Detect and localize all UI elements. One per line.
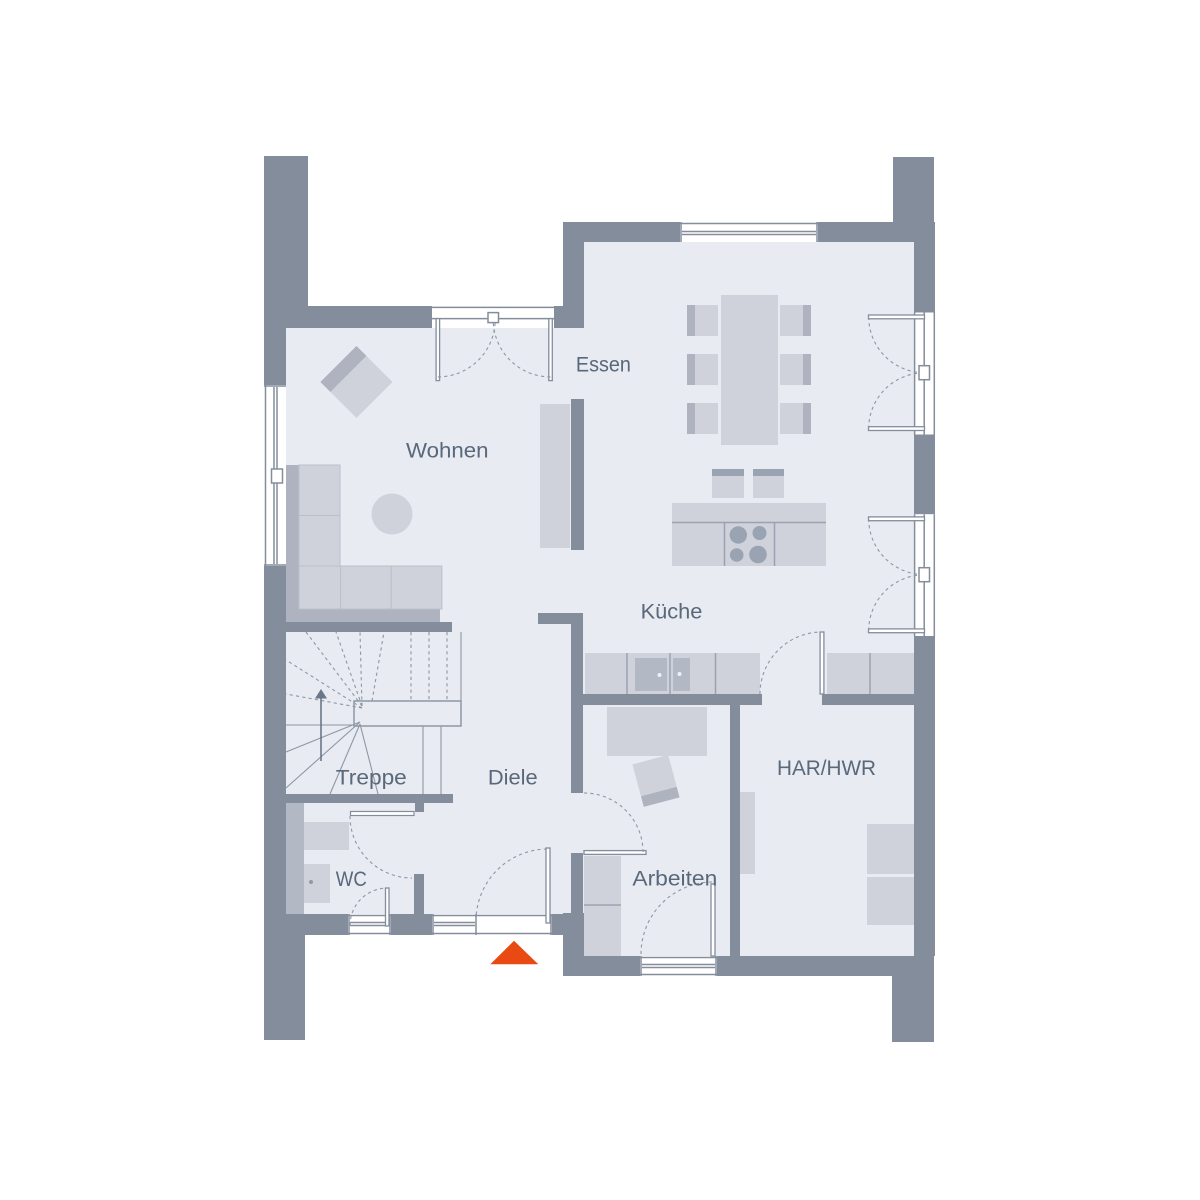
svg-text:Treppe: Treppe xyxy=(336,765,407,790)
svg-text:Arbeiten: Arbeiten xyxy=(632,866,717,891)
svg-text:HAR/HWR: HAR/HWR xyxy=(777,755,876,780)
svg-text:Diele: Diele xyxy=(488,765,538,790)
svg-text:Essen: Essen xyxy=(576,352,631,377)
svg-text:Küche: Küche xyxy=(641,599,703,624)
svg-text:Wohnen: Wohnen xyxy=(406,438,489,463)
svg-text:WC: WC xyxy=(336,866,367,891)
